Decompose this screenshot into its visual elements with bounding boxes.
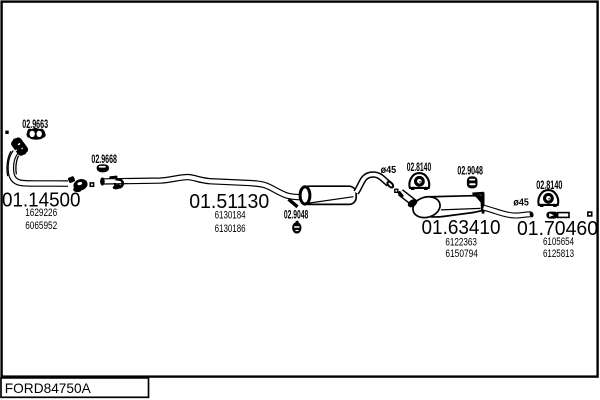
svg-text:1629226: 1629226 (25, 207, 57, 219)
svg-text:FORD84750A: FORD84750A (5, 381, 92, 396)
svg-text:6130186: 6130186 (215, 223, 246, 235)
svg-text:6105654: 6105654 (543, 236, 574, 248)
svg-text:6122363: 6122363 (445, 236, 477, 248)
svg-text:ø45: ø45 (513, 197, 529, 208)
svg-text:01.63410: 01.63410 (422, 216, 501, 239)
svg-text:6150794: 6150794 (445, 248, 478, 260)
svg-text:ø45: ø45 (381, 165, 397, 176)
svg-text:02.9048: 02.9048 (457, 165, 483, 177)
svg-text:6125813: 6125813 (543, 248, 574, 260)
svg-text:6065952: 6065952 (25, 220, 57, 232)
svg-text:6130184: 6130184 (215, 209, 246, 221)
svg-text:02.9048: 02.9048 (284, 210, 309, 222)
